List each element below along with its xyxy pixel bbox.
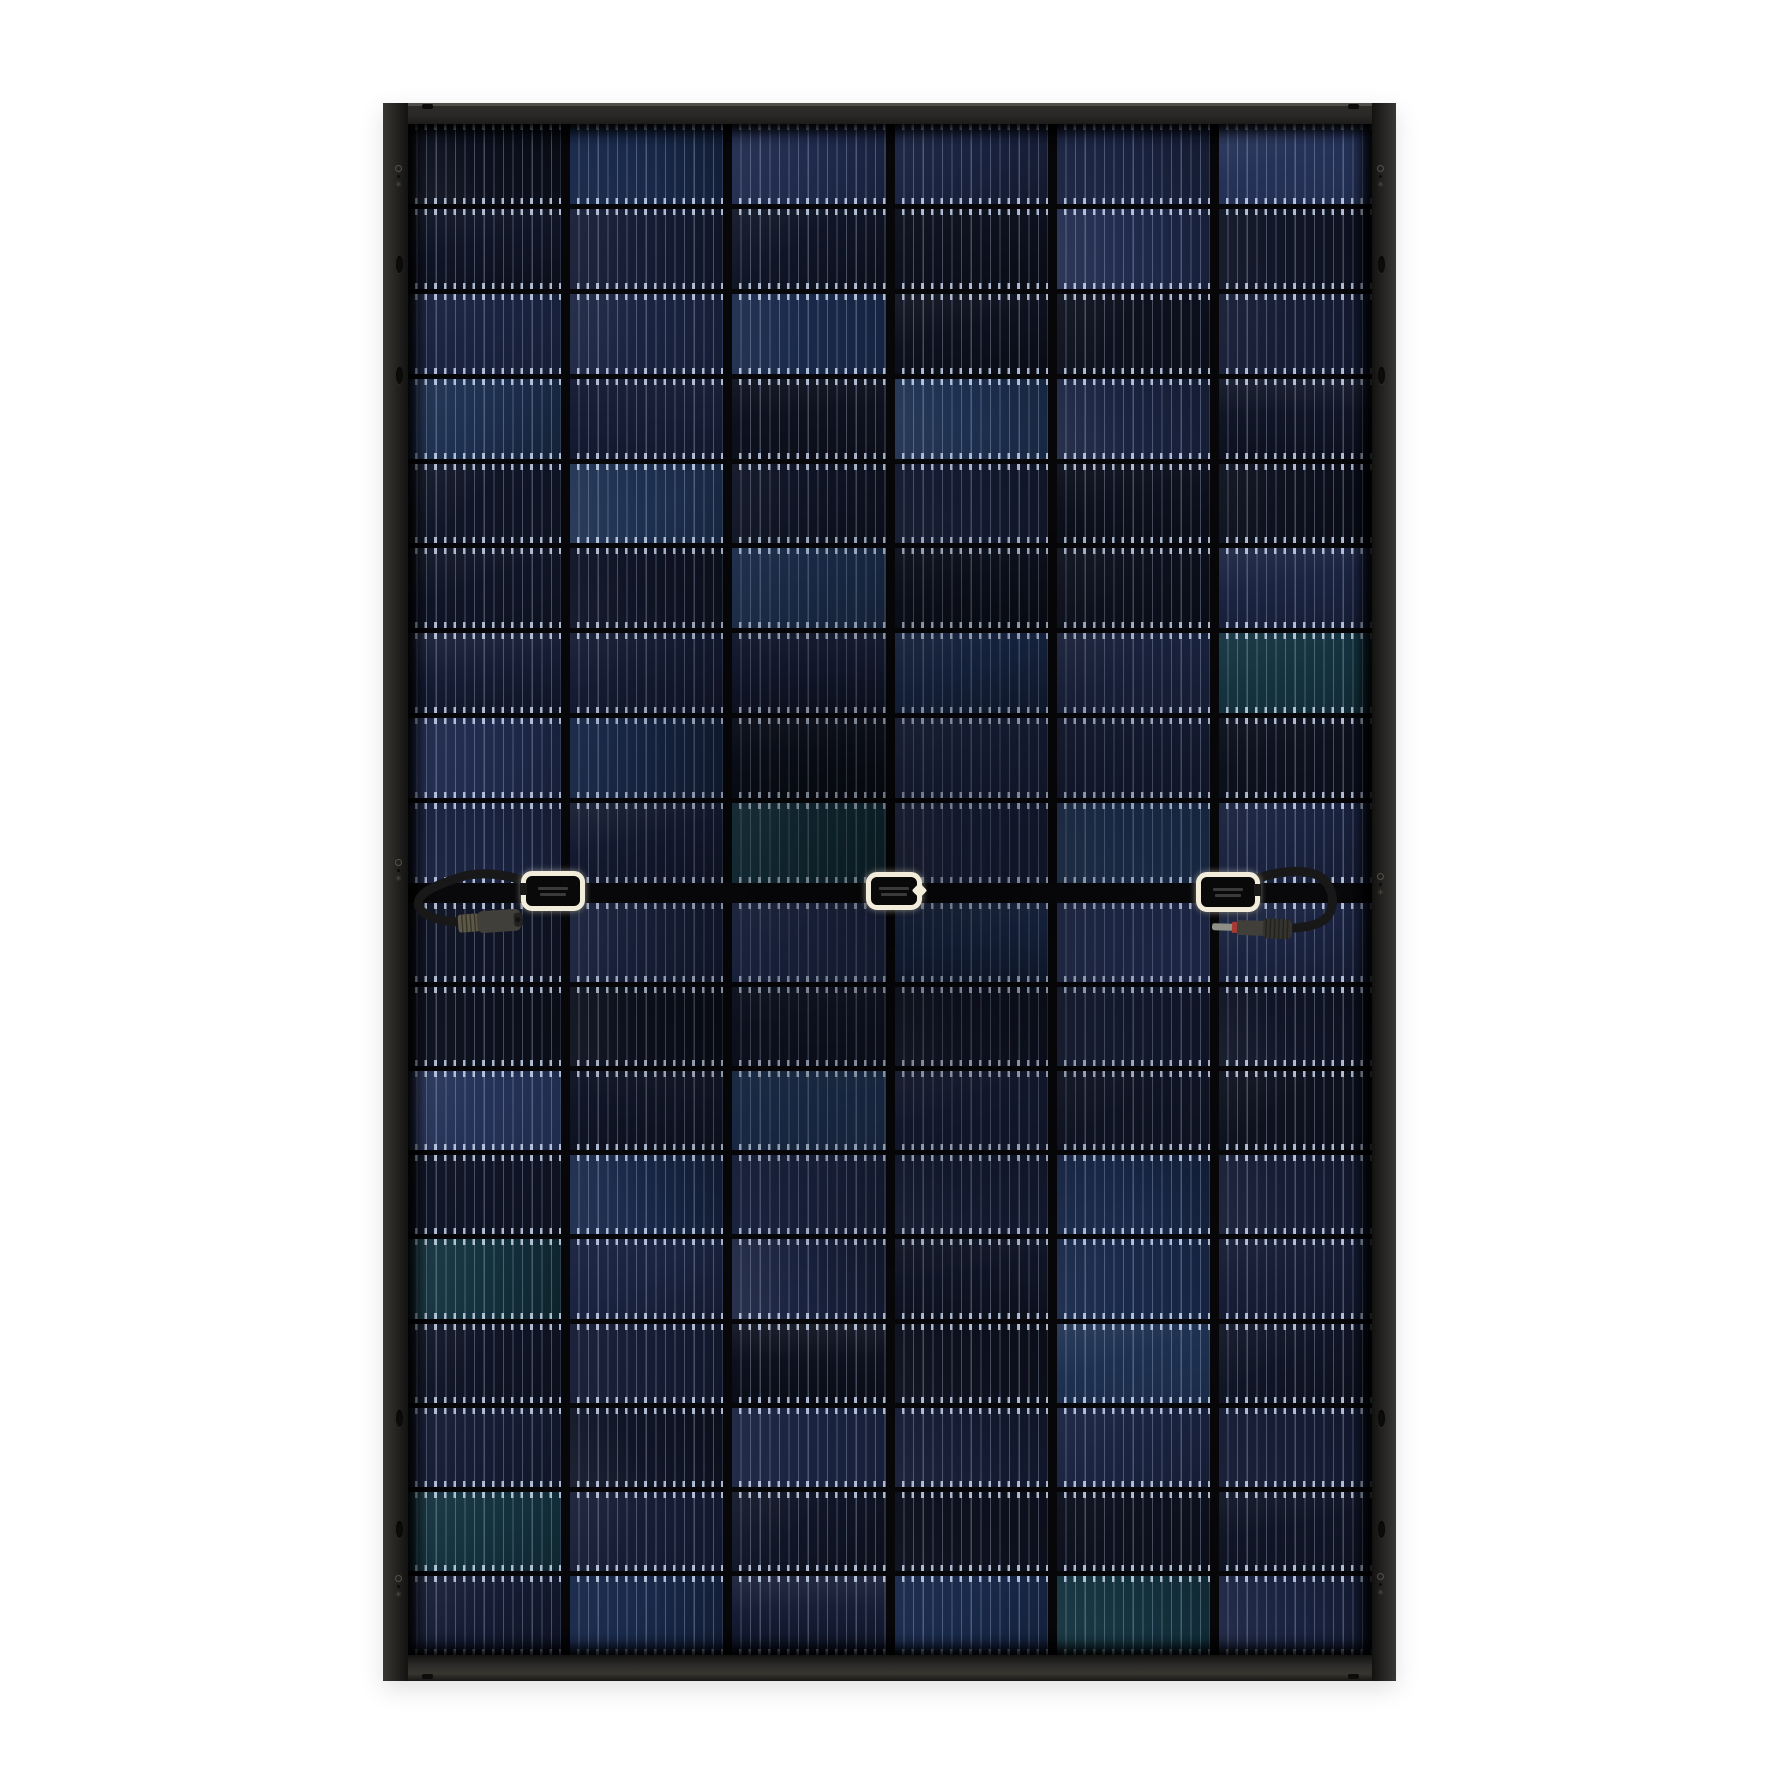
solar-cell (570, 1239, 723, 1318)
mounting-hole (1378, 1521, 1385, 1538)
solar-cell (732, 379, 885, 459)
solar-cell (408, 1155, 561, 1234)
solar-cell (1219, 718, 1372, 798)
solar-cell (570, 803, 723, 883)
solar-cell (408, 124, 561, 204)
solar-cell (408, 903, 561, 982)
solar-cell (408, 294, 561, 374)
solar-cell (1057, 1492, 1210, 1571)
solar-cell (1219, 1155, 1372, 1234)
solar-cell (408, 1239, 561, 1318)
ground-dot-icon (1379, 175, 1382, 178)
solar-cell (1057, 1576, 1210, 1655)
grounding-symbol: ✳ (395, 1575, 402, 1599)
solar-cell (895, 1155, 1048, 1234)
cell-grid-top-half (408, 124, 1372, 883)
solar-cell (1057, 1324, 1210, 1403)
solar-cell (1219, 1576, 1372, 1655)
solar-cell (1057, 987, 1210, 1066)
solar-cell (570, 294, 723, 374)
ground-star-icon: ✳ (395, 1591, 402, 1599)
solar-cell (1057, 464, 1210, 544)
solar-cell (732, 803, 885, 883)
junction-box-center (866, 872, 922, 910)
ground-ring-icon (395, 1575, 402, 1582)
solar-cell (895, 633, 1048, 713)
solar-cell (570, 1492, 723, 1571)
solar-cell (895, 294, 1048, 374)
solar-cell (1057, 718, 1210, 798)
panel-frame-bottom (383, 1655, 1396, 1681)
solar-cell (1057, 1155, 1210, 1234)
solar-cell (732, 1239, 885, 1318)
junction-box-marking (1215, 894, 1241, 897)
mounting-hole (396, 1410, 403, 1427)
solar-cell (1057, 803, 1210, 883)
ground-dot-icon (397, 869, 400, 872)
solar-cell (895, 1324, 1048, 1403)
grounding-symbol: ✳ (395, 859, 402, 883)
solar-cell (570, 718, 723, 798)
solar-cell (895, 1071, 1048, 1150)
solar-cell (570, 209, 723, 289)
solar-cell (1219, 464, 1372, 544)
solar-cell (895, 1408, 1048, 1487)
solar-cell (732, 1492, 885, 1571)
panel-frame-top (383, 103, 1396, 124)
grounding-symbol: ✳ (1377, 1573, 1384, 1597)
solar-cell (1219, 1408, 1372, 1487)
solar-cell (895, 803, 1048, 883)
solar-cell (732, 987, 885, 1066)
mounting-hole (1378, 256, 1385, 273)
solar-cell (1219, 379, 1372, 459)
ground-dot-icon (397, 1585, 400, 1588)
solar-cell (570, 1155, 723, 1234)
solar-cell (732, 1155, 885, 1234)
solar-cell (408, 1492, 561, 1571)
solar-cell (408, 209, 561, 289)
grounding-symbol: ✳ (1377, 873, 1384, 897)
solar-panel: ✳✳✳✳✳✳ (383, 103, 1396, 1681)
ground-ring-icon (1377, 165, 1384, 172)
mounting-hole (1378, 367, 1385, 384)
junction-box-marking (879, 887, 909, 890)
ground-dot-icon (397, 175, 400, 178)
mounting-hole (396, 256, 403, 273)
solar-cell (570, 903, 723, 982)
solar-cell (408, 1071, 561, 1150)
cable-entry-notch (520, 883, 527, 895)
ground-star-icon: ✳ (1377, 181, 1384, 189)
solar-cell (1057, 379, 1210, 459)
solar-cell (732, 294, 885, 374)
solar-cell (895, 1492, 1048, 1571)
junction-box-right (1196, 872, 1260, 912)
solar-cell (895, 209, 1048, 289)
ground-dot-icon (1379, 1583, 1382, 1586)
solar-cell (408, 1576, 561, 1655)
panel-frame-left (383, 103, 408, 1681)
solar-cell (895, 379, 1048, 459)
solar-cell (570, 548, 723, 628)
ground-ring-icon (395, 165, 402, 172)
solar-cell (1219, 1324, 1372, 1403)
solar-cell (732, 464, 885, 544)
solar-cell (1219, 294, 1372, 374)
solar-cell (408, 987, 561, 1066)
solar-cell (570, 987, 723, 1066)
solar-cell (732, 718, 885, 798)
junction-box-marking (540, 893, 566, 896)
junction-box-marking (538, 887, 568, 890)
drain-slot (1348, 1674, 1359, 1679)
solar-cell (732, 1071, 885, 1150)
solar-cell (570, 633, 723, 713)
solar-cell (895, 903, 1048, 982)
solar-cell (1219, 1239, 1372, 1318)
solar-cell (408, 1408, 561, 1487)
drain-slot (1348, 104, 1359, 109)
solar-cell (570, 1576, 723, 1655)
cell-grid-bottom-half (408, 903, 1372, 1655)
solar-cell (732, 633, 885, 713)
ground-star-icon: ✳ (395, 181, 402, 189)
solar-cell (408, 633, 561, 713)
solar-cell (1057, 1071, 1210, 1150)
drain-slot (422, 104, 433, 109)
solar-cell (1219, 1071, 1372, 1150)
cable-entry-notch (1254, 884, 1261, 896)
mounting-hole (396, 367, 403, 384)
solar-cell (732, 124, 885, 204)
mounting-hole (396, 1521, 403, 1538)
solar-cell (1219, 903, 1372, 982)
solar-cell (732, 1576, 885, 1655)
mounting-hole (1378, 1410, 1385, 1427)
solar-cell (570, 1408, 723, 1487)
solar-cell (895, 464, 1048, 544)
solar-cell (732, 1408, 885, 1487)
ground-dot-icon (1379, 883, 1382, 886)
solar-cell (1219, 1492, 1372, 1571)
solar-cell (1219, 548, 1372, 628)
solar-cell (570, 379, 723, 459)
ground-star-icon: ✳ (1377, 1589, 1384, 1597)
solar-cell (895, 548, 1048, 628)
solar-cell (1219, 633, 1372, 713)
solar-cell (1057, 548, 1210, 628)
solar-cell (1057, 1239, 1210, 1318)
solar-cell (895, 1576, 1048, 1655)
solar-cell (570, 124, 723, 204)
solar-cell (895, 718, 1048, 798)
solar-cell (570, 464, 723, 544)
ground-ring-icon (1377, 1573, 1384, 1580)
grounding-symbol: ✳ (1377, 165, 1384, 189)
grounding-symbol: ✳ (395, 165, 402, 189)
solar-cell (408, 548, 561, 628)
solar-cell (1219, 987, 1372, 1066)
ground-star-icon: ✳ (395, 875, 402, 883)
junction-box-marking (1213, 888, 1243, 891)
panel-frame-right (1372, 103, 1396, 1681)
drain-slot (422, 1674, 433, 1679)
solar-cell (570, 1324, 723, 1403)
product-photo-canvas: ✳✳✳✳✳✳ (0, 0, 1782, 1783)
solar-cell (1219, 209, 1372, 289)
solar-cell (1057, 1408, 1210, 1487)
solar-cell (1057, 294, 1210, 374)
solar-cell (732, 1324, 885, 1403)
solar-cell (1057, 633, 1210, 713)
solar-cell (408, 718, 561, 798)
solar-cell (1057, 209, 1210, 289)
solar-cell (895, 1239, 1048, 1318)
ground-ring-icon (395, 859, 402, 866)
junction-box-left (521, 871, 585, 911)
solar-cell (732, 903, 885, 982)
solar-cell (408, 379, 561, 459)
solar-cell (1057, 903, 1210, 982)
solar-cell (732, 209, 885, 289)
solar-cell (408, 464, 561, 544)
solar-cell (1057, 124, 1210, 204)
solar-cell (1219, 124, 1372, 204)
solar-cell (570, 1071, 723, 1150)
solar-cell (895, 124, 1048, 204)
ground-star-icon: ✳ (1377, 889, 1384, 897)
solar-cell (895, 987, 1048, 1066)
junction-box-marking (881, 893, 907, 896)
solar-cell (732, 548, 885, 628)
solar-cell (408, 1324, 561, 1403)
ground-ring-icon (1377, 873, 1384, 880)
